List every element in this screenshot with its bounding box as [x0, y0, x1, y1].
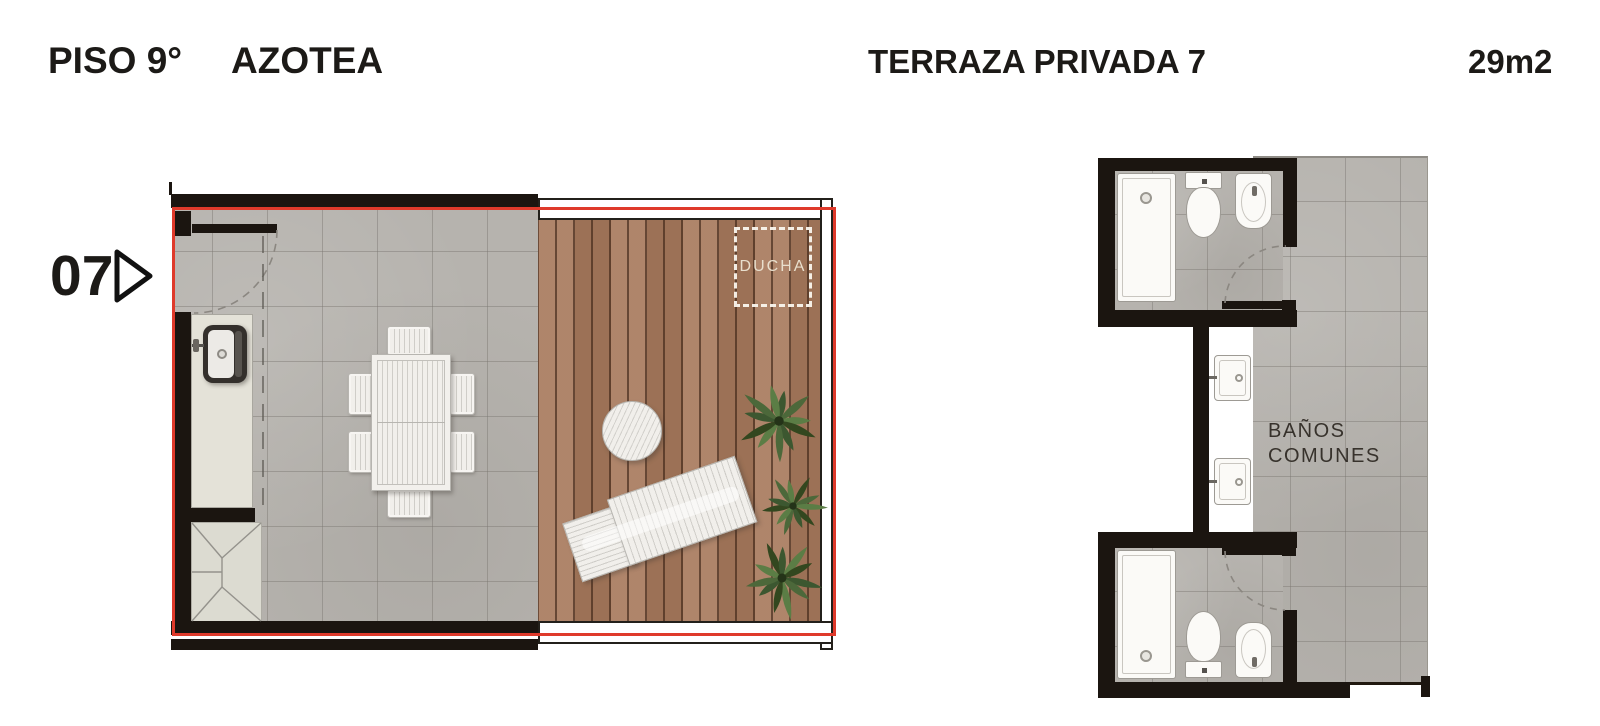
unit-number: 07	[50, 243, 113, 309]
plan-title: TERRAZA PRIVADA 7	[868, 43, 1206, 81]
bath-top-wall-left	[1098, 158, 1115, 327]
bidet	[1235, 173, 1272, 229]
bath-top-door-hinge	[1282, 300, 1296, 311]
bath-top-wall-top	[1098, 158, 1297, 171]
wash-basin	[1214, 458, 1251, 505]
area-label: 29m2	[1468, 43, 1552, 81]
toilet-bowl	[1186, 611, 1221, 662]
floor-label: PISO 9°	[48, 40, 182, 82]
common-baths-label-line2: COMUNES	[1268, 444, 1381, 469]
bath-top-wall-right	[1283, 158, 1297, 247]
boundary-end-cap	[1421, 676, 1430, 697]
bath-bottom-door-leaf	[1222, 547, 1282, 555]
common-baths-label-line1: BAÑOS	[1268, 419, 1381, 444]
terrace-red-outline	[172, 207, 836, 636]
terrace-wall-bottom-outer	[171, 639, 538, 650]
bath-top-door-leaf	[1222, 301, 1282, 309]
corridor-wall	[1193, 310, 1209, 548]
shower-tray	[1117, 550, 1176, 679]
bath-bottom-wall-right	[1283, 610, 1297, 682]
floorplan-page: PISO 9° AZOTEA TERRAZA PRIVADA 7 29m2 07	[0, 0, 1600, 726]
unit-arrow-icon	[110, 246, 158, 308]
toilet-bowl	[1186, 187, 1221, 238]
bath-bottom-wall-bottom	[1098, 682, 1350, 698]
terrace-wall-top	[171, 194, 538, 208]
shower-tray	[1117, 173, 1176, 302]
bidet	[1235, 622, 1272, 678]
bath-bottom-wall-left	[1098, 532, 1115, 694]
boundary-line	[1350, 682, 1422, 685]
wall-end-tick	[169, 182, 172, 195]
common-baths-label: BAÑOS COMUNES	[1268, 419, 1381, 469]
wash-basin	[1214, 355, 1251, 401]
bath-bottom-door-hinge	[1282, 545, 1296, 556]
floor-sublabel: AZOTEA	[231, 40, 383, 82]
toilet-tank	[1185, 661, 1222, 678]
bath-bottom-wall-top	[1098, 532, 1297, 548]
